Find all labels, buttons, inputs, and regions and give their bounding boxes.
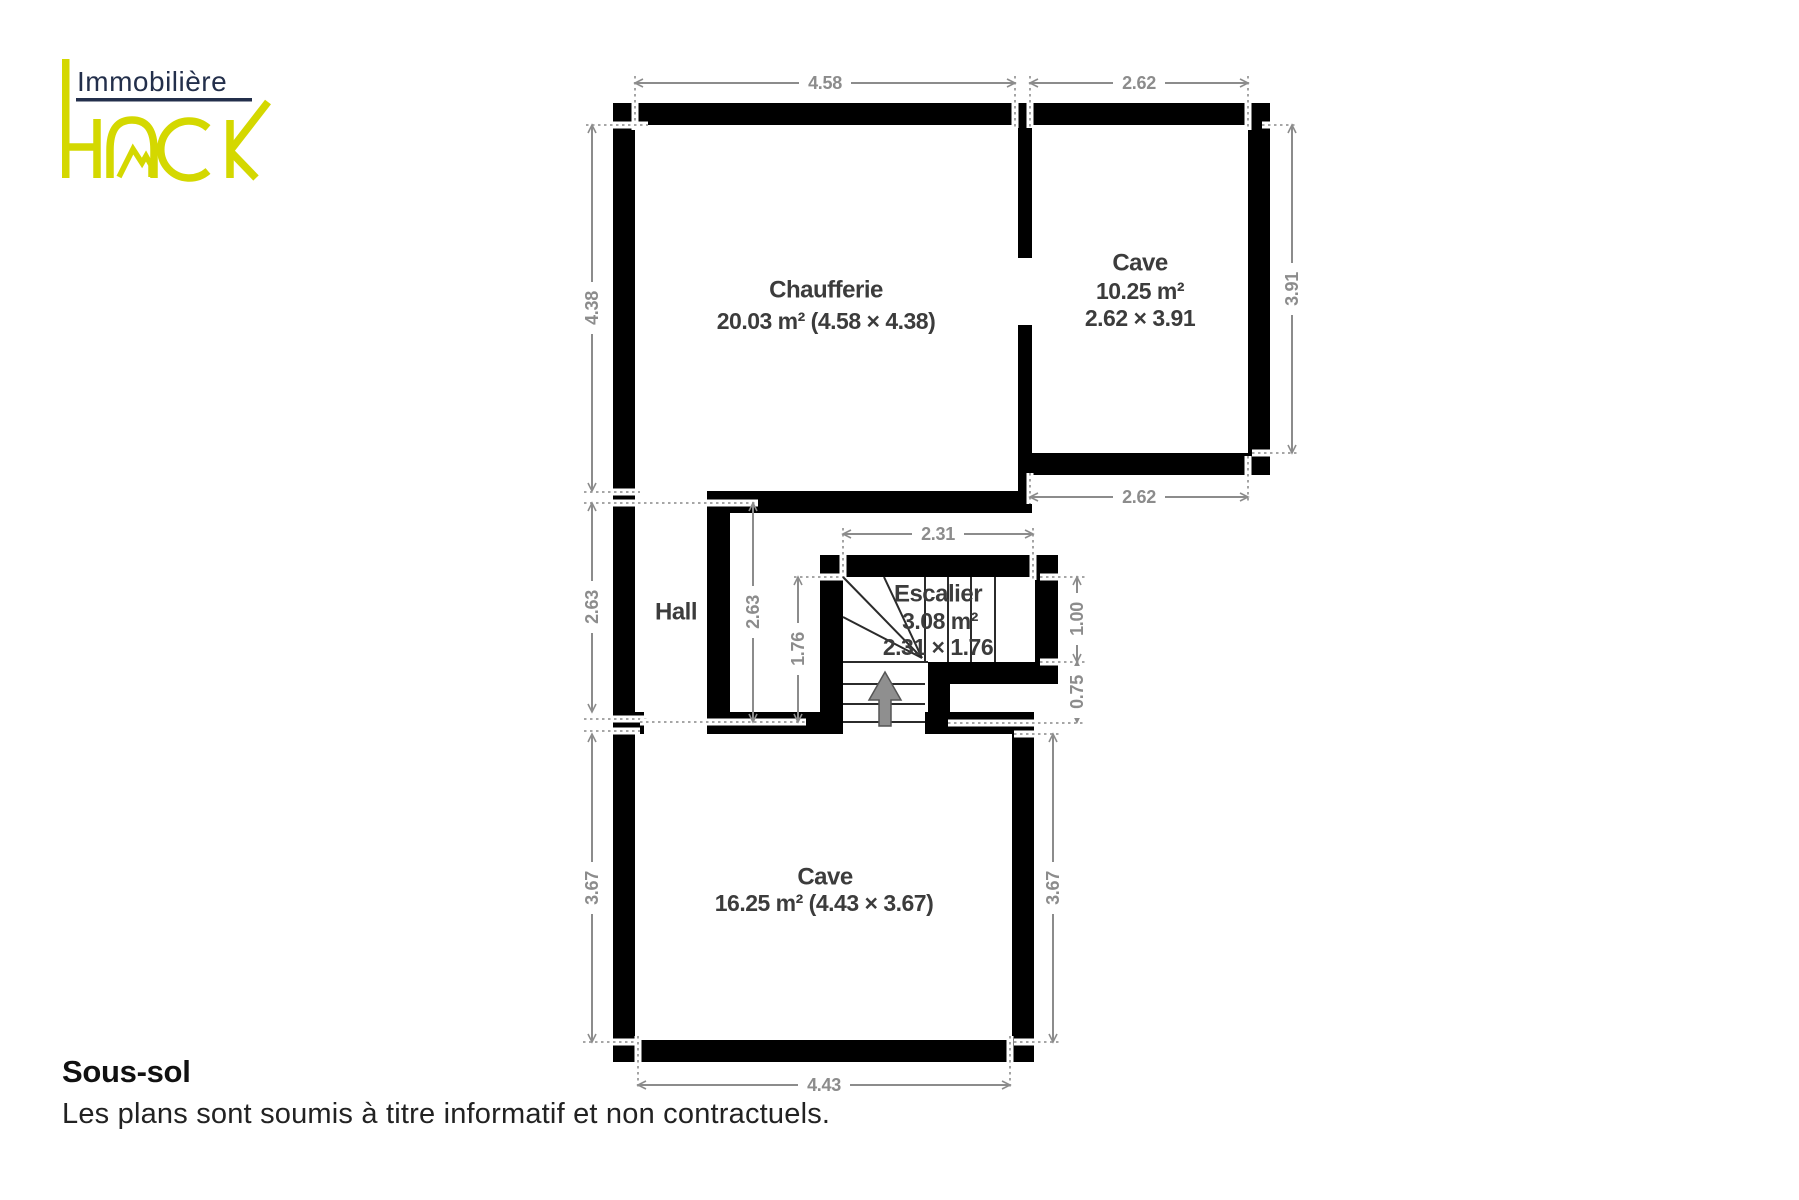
room-size-cave-top: 2.62 × 3.91 [1085,305,1196,331]
svg-text:2.63: 2.63 [743,595,763,629]
dim-left-cave-height: 3.67 [581,734,603,1042]
dim-right-cave-bottom-height: 3.67 [1042,734,1064,1042]
svg-text:2.62: 2.62 [1122,487,1156,507]
disclaimer: Les plans sont soumis à titre informatif… [62,1098,830,1131]
room-labels: Chaufferie 20.03 m² (4.58 × 4.38) Cave 1… [655,250,1196,917]
dim-top-chaufferie-width: 4.58 [635,72,1015,94]
room-label-chaufferie: Chaufferie [769,277,883,304]
svg-text:2.62: 2.62 [1122,73,1156,93]
room-label-cave-top: Cave [1112,250,1168,277]
room-label-hall: Hall [655,599,697,626]
svg-text:2.63: 2.63 [582,590,602,624]
logo: HACK Immobilière [58,50,278,190]
room-area-cave-top: 10.25 m² [1096,278,1185,304]
floor-title: Sous-sol [62,1054,830,1090]
dim-step-height: 0.75 [1066,662,1088,722]
room-size-escalier: 2.31 × 1.76 [883,634,993,660]
footer: Sous-sol Les plans sont soumis à titre i… [62,1054,830,1131]
dim-landing-height: 1.00 [1066,577,1088,662]
svg-text:1.00: 1.00 [1067,602,1087,636]
svg-text:1.76: 1.76 [788,632,808,666]
dim-escalier-height: 1.76 [787,577,809,722]
svg-text:3.67: 3.67 [582,871,602,905]
dim-right-cave-height: 3.91 [1281,125,1303,453]
logo-bar [62,59,70,178]
room-label-cave-bottom: Cave [797,864,853,891]
svg-text:3.91: 3.91 [1282,272,1302,306]
room-details-cave-bottom: 16.25 m² (4.43 × 3.67) [715,890,934,916]
company-name: Immobilière [77,66,227,97]
dim-left-hall-height: 2.63 [581,503,603,712]
svg-text:2.31: 2.31 [921,524,955,544]
dim-left-chaufferie-height: 4.38 [581,125,603,491]
dim-below-cave-width: 2.62 [1030,486,1248,508]
stairs-up-arrow-icon [869,672,901,726]
room-details-chaufferie: 20.03 m² (4.58 × 4.38) [717,308,936,334]
svg-text:4.58: 4.58 [808,73,842,93]
svg-text:0.75: 0.75 [1067,675,1087,709]
dim-top-cave-width: 2.62 [1030,72,1248,94]
logo-rule [76,98,252,102]
svg-text:3.67: 3.67 [1043,871,1063,905]
svg-text:4.38: 4.38 [582,291,602,325]
room-label-escalier: Escalier [894,581,982,608]
room-area-escalier: 3.08 m² [902,608,979,634]
dim-escalier-width: 2.31 [843,523,1033,545]
dim-inner-hall-height: 2.63 [742,503,764,722]
logo-mark: HACK Immobilière [58,50,278,185]
brand-name-glyphs [66,102,268,178]
